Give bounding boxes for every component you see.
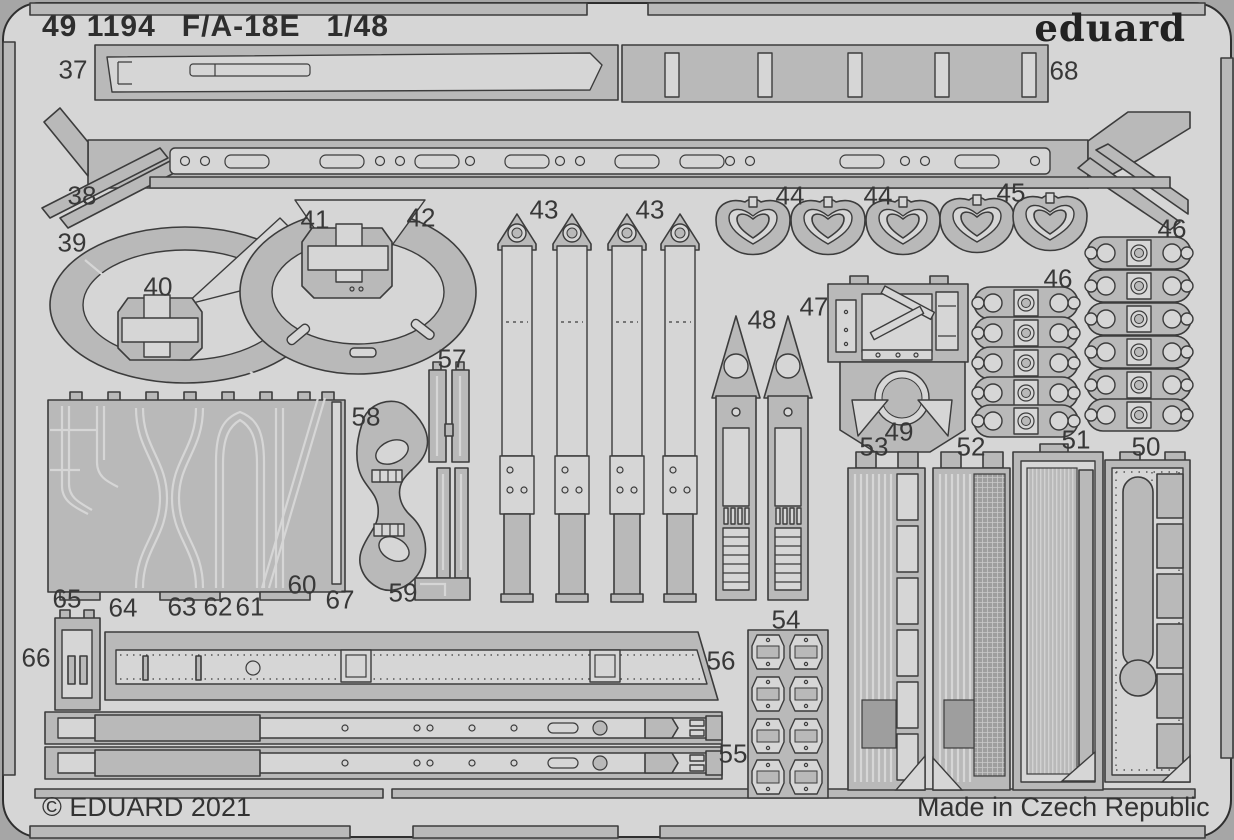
part-number-label: 54 — [772, 605, 801, 636]
part-40-shape — [118, 295, 202, 360]
catalog-number: 49 1194 — [42, 10, 156, 44]
part-number-label: 67 — [326, 585, 355, 616]
part-number-label: 47 — [800, 292, 829, 323]
part-number-label: 56 — [707, 646, 736, 677]
part-number-label: 52 — [957, 432, 986, 463]
part-number-label: 48 — [748, 305, 777, 336]
part-number-label: 63 — [168, 592, 197, 623]
part-number-label: 50 — [1132, 432, 1161, 463]
part-number-label: 42 — [407, 203, 436, 234]
part-48-shape — [712, 316, 812, 600]
pe-fret-graphic — [0, 0, 1234, 840]
part-54-shape — [748, 630, 828, 798]
part-53-shape — [848, 452, 925, 790]
part-number-label: 46 — [1044, 264, 1073, 295]
part-67-strip — [332, 402, 341, 584]
part-number-label: 44 — [776, 181, 805, 212]
part-51-shape — [1013, 444, 1103, 790]
aircraft-name: F/A-18E — [182, 10, 301, 44]
part-number-label: 41 — [301, 205, 330, 236]
part-number-label: 55 — [719, 739, 748, 770]
part-50-shape — [1105, 452, 1190, 782]
part-number-label: 53 — [860, 432, 889, 463]
scale-label: 1/48 — [327, 10, 389, 44]
part-number-label: 39 — [58, 228, 87, 259]
part-number-label: 62 — [204, 592, 233, 623]
part-43-shapes — [498, 214, 699, 602]
part-number-label: 58 — [352, 402, 381, 433]
part-47-shape — [828, 276, 968, 362]
part-57-shape — [429, 362, 469, 462]
part-68-shape — [622, 45, 1048, 102]
part-number-label: 59 — [389, 578, 418, 609]
part-number-label: 68 — [1050, 56, 1079, 87]
part-number-label: 37 — [59, 55, 88, 86]
part-number-label: 65 — [53, 584, 82, 615]
part-52-shape — [933, 452, 1010, 790]
part-44-45-shapes — [716, 193, 1087, 255]
part-number-label: 60 — [288, 570, 317, 601]
made-in-text: Made in Czech Republic — [917, 792, 1210, 823]
part-number-label: 51 — [1062, 425, 1091, 456]
part-number-label: 43 — [636, 195, 665, 226]
part-number-label: 64 — [109, 593, 138, 624]
part-56-shape — [105, 632, 718, 700]
part-46-grids — [972, 237, 1193, 437]
photoetch-sheet-photo: 49 1194 F/A-18E 1/48 eduard © EDUARD 202… — [0, 0, 1234, 840]
part-number-label: 49 — [885, 417, 914, 448]
sheet-header: 49 1194 F/A-18E 1/48 — [42, 10, 389, 44]
copyright-text: © EDUARD 2021 — [42, 792, 251, 823]
part-37-shape — [95, 45, 618, 100]
part-number-label: 61 — [236, 592, 265, 623]
part-55-shape — [45, 712, 722, 779]
part-number-label: 38 — [68, 181, 97, 212]
part-number-label: 44 — [864, 181, 893, 212]
part-66-shape — [55, 610, 100, 710]
part-number-label: 45 — [997, 178, 1026, 209]
part-number-label: 40 — [144, 272, 173, 303]
part-number-label: 43 — [530, 195, 559, 226]
part-number-label: 66 — [22, 643, 51, 674]
part-number-label: 46 — [1158, 214, 1187, 245]
eduard-logo: eduard — [1034, 6, 1186, 50]
part-number-label: 57 — [438, 344, 467, 375]
